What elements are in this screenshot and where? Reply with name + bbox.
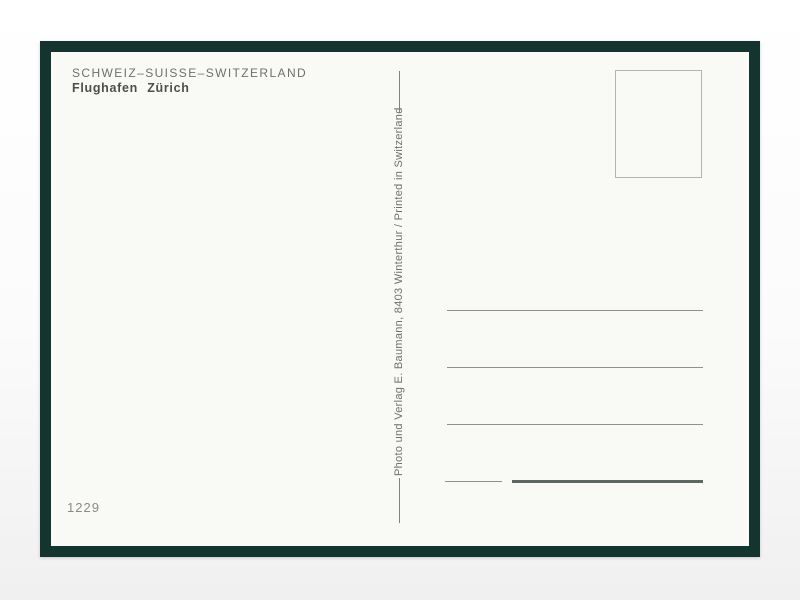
scanned-postcard-page: { "postcard": { "header": { "country_lin… xyxy=(0,0,800,600)
publisher-imprint: Photo und Verlag E. Baumann, 8403 Winter… xyxy=(392,116,406,476)
postcard-frame: SCHWEIZ–SUISSE–SWITZERLAND Flughafen Zür… xyxy=(40,41,760,557)
divider-dash-bottom xyxy=(399,478,400,523)
postcard-back: SCHWEIZ–SUISSE–SWITZERLAND Flughafen Zür… xyxy=(51,52,749,546)
address-line-4-thick-segment xyxy=(512,480,703,483)
address-line-1 xyxy=(447,310,703,311)
postcard-header: SCHWEIZ–SUISSE–SWITZERLAND Flughafen Zür… xyxy=(72,66,307,96)
address-line-4-short-segment xyxy=(445,481,502,482)
address-line-3 xyxy=(447,424,703,425)
stamp-box xyxy=(615,70,702,178)
card-number: 1229 xyxy=(67,500,100,515)
address-line-2 xyxy=(447,367,703,368)
postcard-title: Flughafen Zürich xyxy=(72,81,307,96)
country-line: SCHWEIZ–SUISSE–SWITZERLAND xyxy=(72,66,307,81)
